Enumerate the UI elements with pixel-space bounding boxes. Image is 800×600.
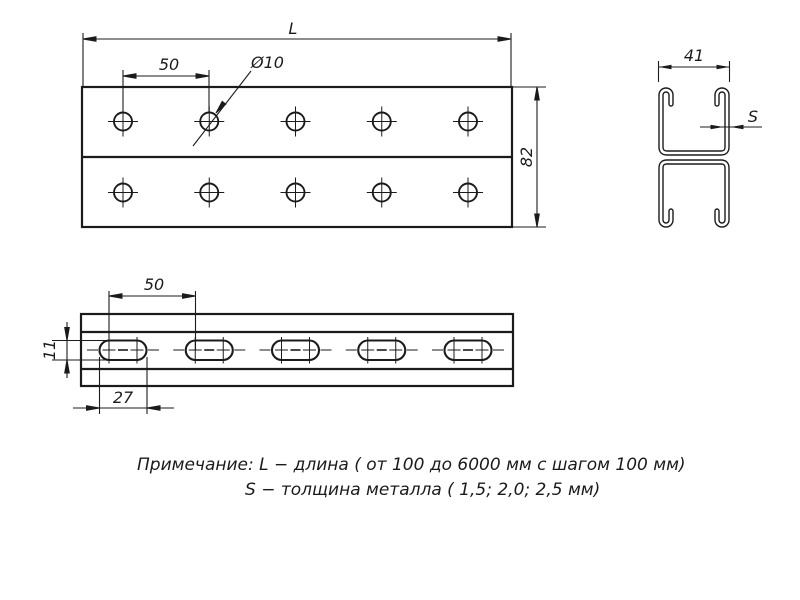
arrowhead (535, 214, 540, 227)
dim-length (83, 33, 511, 87)
dim-label-hole-pitch: 50 (159, 55, 179, 74)
arrowhead (731, 125, 744, 130)
arrowhead (659, 65, 672, 70)
note-line-2: S − толщина металла ( 1,5; 2,0; 2,5 мм) (245, 480, 600, 500)
hole-crosshair (281, 178, 311, 208)
arrowhead (87, 406, 100, 411)
arrowhead (535, 87, 540, 100)
slot (346, 337, 418, 364)
dim-label-length: L (289, 19, 298, 38)
hole-crosshair (108, 178, 138, 208)
note-line-1: Примечание: L − длина ( от 100 до 6000 м… (137, 455, 686, 475)
hole-crosshair (367, 178, 397, 208)
top-view: L 50 Ø10 82 (82, 19, 546, 227)
section-profile (661, 90, 727, 225)
arrowhead (147, 406, 160, 411)
hole-crosshair (194, 178, 224, 208)
arrowhead (717, 65, 730, 70)
top-view-outline (82, 87, 512, 227)
arrowhead (183, 294, 196, 299)
dim-label-slot-height: 11 (40, 340, 59, 360)
slot-pattern (87, 337, 504, 364)
dim-label-section-width: 41 (684, 46, 704, 65)
arrowhead (65, 328, 70, 341)
hole-crosshair (281, 107, 311, 137)
arrowhead (65, 360, 70, 373)
hole-crosshair (367, 107, 397, 137)
dim-hole-diameter-leader (193, 71, 251, 146)
slot (173, 337, 245, 364)
arrowhead (711, 125, 724, 130)
dim-label-profile-height: 82 (517, 147, 536, 167)
arrowhead (109, 294, 122, 299)
arrowhead (214, 101, 226, 114)
dim-label-thickness: S (748, 107, 758, 126)
slot (260, 337, 332, 364)
cross-section-view: 41 S (659, 46, 763, 225)
arrowhead (498, 37, 511, 42)
arrowhead (83, 37, 96, 42)
dim-label-slot-length: 27 (113, 388, 134, 407)
hole-crosshair (453, 178, 483, 208)
drawing-canvas: L 50 Ø10 82 (0, 0, 800, 600)
technical-drawing: L 50 Ø10 82 (0, 0, 800, 600)
slot (432, 337, 504, 364)
note-block: Примечание: L − длина ( от 100 до 6000 м… (137, 455, 686, 500)
arrowhead (123, 74, 136, 79)
side-view: 50 11 27 (40, 275, 513, 414)
dim-label-hole-diameter: Ø10 (250, 53, 284, 72)
hole-crosshair (453, 107, 483, 137)
dim-label-slot-pitch: 50 (144, 275, 164, 294)
arrowhead (196, 74, 209, 79)
